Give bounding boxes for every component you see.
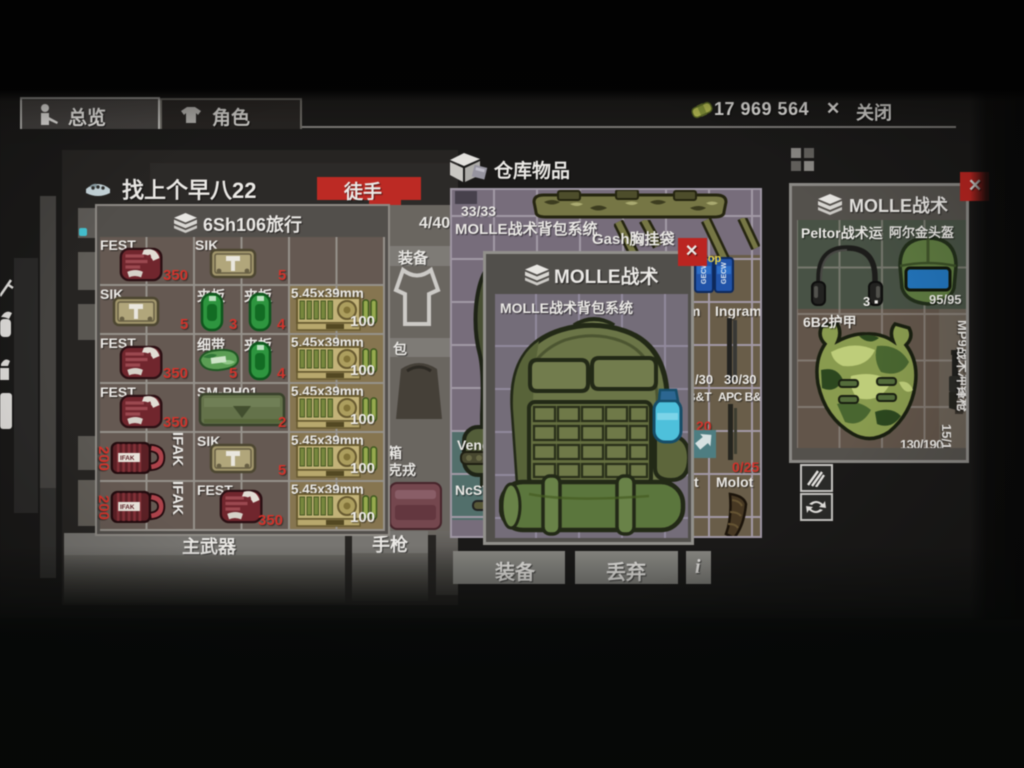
svg-text:GECW: GECW: [721, 262, 728, 284]
